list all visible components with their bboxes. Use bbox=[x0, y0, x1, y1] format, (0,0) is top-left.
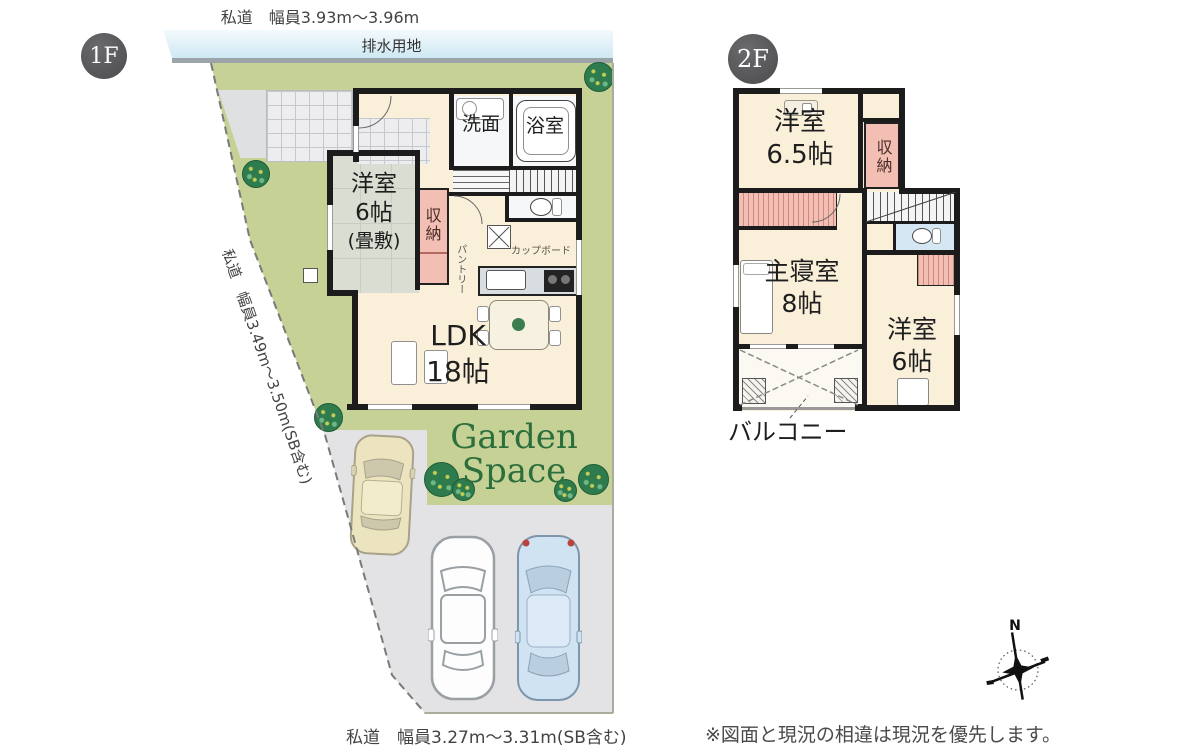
western6-line2: 6帖 bbox=[868, 346, 956, 378]
western6-line1: 洋室 bbox=[868, 314, 956, 346]
floor1-stairs bbox=[509, 168, 578, 192]
toilet-bowl-1f bbox=[530, 198, 552, 216]
car-blue bbox=[515, 533, 582, 703]
room-label-bath: 浴室 bbox=[512, 114, 578, 138]
table-plant bbox=[512, 318, 525, 331]
road-edge-line bbox=[172, 58, 613, 63]
kitchen-sink bbox=[486, 270, 526, 290]
room-label-closet1f: 収納 bbox=[421, 194, 441, 256]
stove-burner-1 bbox=[548, 275, 557, 284]
western65-line2: 6.5帖 bbox=[745, 139, 855, 172]
floor2-small-closet bbox=[917, 254, 955, 286]
room-label-western65: 洋室 6.5帖 bbox=[745, 106, 855, 173]
dining-chair-3 bbox=[549, 306, 561, 322]
floorplan-canvas: 洗面 浴室 洋室 6帖 (畳敷) 収納 パントリー カップボード LDK 18帖… bbox=[0, 0, 1200, 750]
toilet-tank-2f bbox=[932, 228, 941, 244]
compass-north-label: N bbox=[1000, 618, 1030, 634]
tree-icon bbox=[242, 160, 270, 188]
room-label-western6: 洋室 6帖 bbox=[868, 314, 956, 378]
floor2-closet-band bbox=[737, 192, 837, 228]
disclaimer-note: ※図面と現況の相違は現況を優先します。 bbox=[705, 720, 1197, 747]
western1f-line2: 6帖 bbox=[330, 199, 418, 228]
master-line1: 主寝室 bbox=[745, 256, 859, 288]
room-label-pantry: パントリー bbox=[453, 234, 466, 304]
room-label-closet2f: 収納 bbox=[872, 128, 892, 186]
balcony-hatch-left bbox=[742, 378, 766, 404]
floor2-stairs bbox=[866, 192, 955, 223]
compass-rose-icon bbox=[979, 627, 1054, 704]
balcony-hatch-right bbox=[834, 378, 858, 403]
floor2-badge: 2F bbox=[728, 34, 778, 84]
meter-box bbox=[303, 268, 318, 283]
car-white bbox=[428, 533, 498, 703]
floor2-notch bbox=[901, 88, 960, 189]
room-label-cupboard: カップボード bbox=[504, 246, 578, 259]
garden-line2: Space bbox=[440, 454, 588, 488]
car-cream bbox=[347, 431, 417, 558]
floor1-hallway bbox=[453, 170, 509, 192]
toilet-tank-1f bbox=[552, 198, 562, 216]
tree-icon bbox=[314, 403, 343, 432]
ldk-line1: LDK bbox=[408, 318, 508, 354]
toilet-bowl-2f bbox=[912, 228, 932, 244]
room-label-balcony: バルコニー bbox=[728, 417, 888, 448]
garden-space-label: Garden Space bbox=[440, 420, 588, 488]
bottom-road-label: 私道 幅員3.27m〜3.31m(SB含む) bbox=[346, 723, 681, 748]
room-label-master: 主寝室 8帖 bbox=[745, 256, 859, 320]
drainage-label: 排水用地 bbox=[170, 35, 613, 56]
master-line2: 8帖 bbox=[745, 288, 859, 320]
dresser bbox=[897, 378, 929, 406]
tree-icon bbox=[584, 62, 614, 92]
western1f-line1: 洋室 bbox=[330, 170, 418, 199]
garden-line1: Garden bbox=[440, 420, 588, 454]
western65-line1: 洋室 bbox=[745, 106, 855, 139]
room-label-western1f: 洋室 6帖 (畳敷) bbox=[330, 170, 418, 253]
western1f-line3: (畳敷) bbox=[330, 229, 418, 253]
ldk-line2: 18帖 bbox=[408, 354, 508, 390]
floor1-badge: 1F bbox=[81, 33, 127, 79]
stove-burner-2 bbox=[561, 275, 570, 284]
top-road-label: 私道 幅員3.93m〜3.96m bbox=[168, 4, 472, 28]
room-label-washroom: 洗面 bbox=[451, 112, 511, 136]
dining-chair-4 bbox=[549, 330, 561, 346]
room-label-ldk: LDK 18帖 bbox=[408, 318, 508, 390]
